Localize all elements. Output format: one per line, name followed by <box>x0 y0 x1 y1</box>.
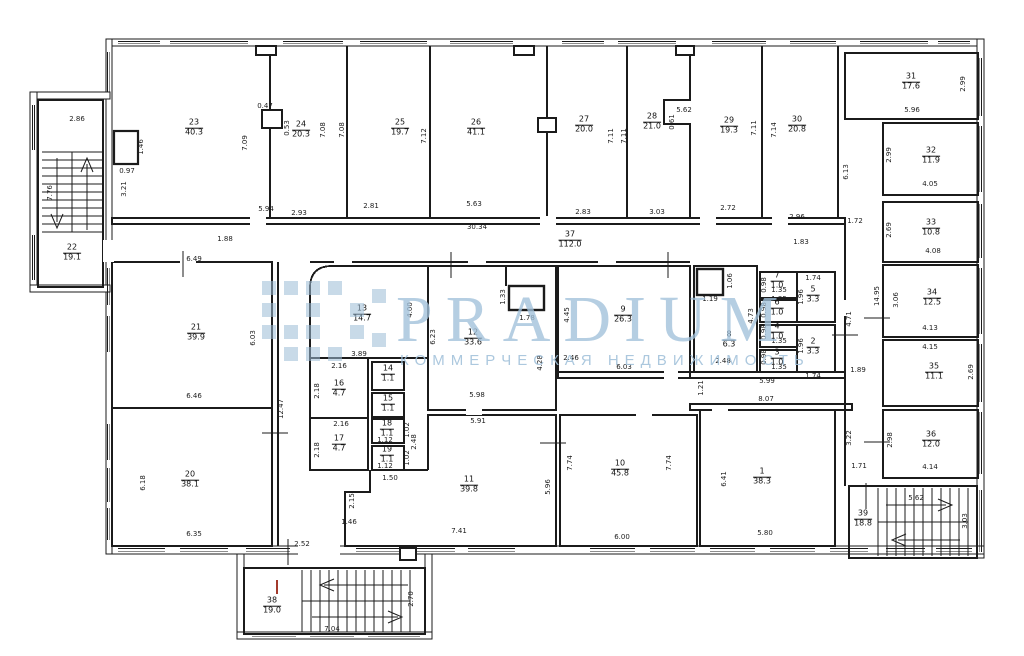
floorplan-drawing <box>0 0 1024 656</box>
staircase-bottom <box>302 570 410 632</box>
exterior-walls <box>30 39 984 639</box>
floorplan-canvas: 138.323.331.041.053.361.071.086.3926.310… <box>0 0 1024 656</box>
door-openings <box>103 216 788 556</box>
staircase-left <box>42 152 102 232</box>
